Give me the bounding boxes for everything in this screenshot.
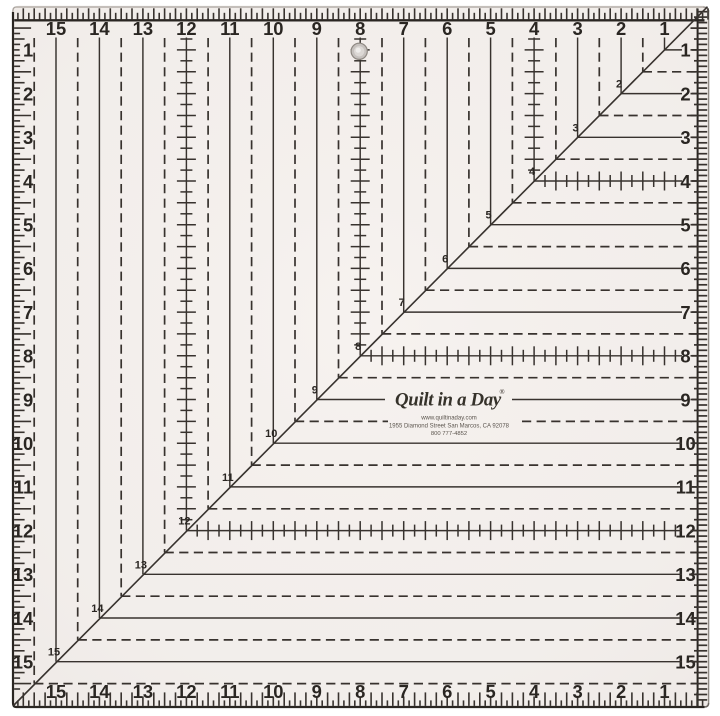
svg-text:13: 13 xyxy=(13,564,33,585)
svg-text:9: 9 xyxy=(312,18,322,39)
svg-text:9: 9 xyxy=(312,385,318,397)
svg-text:7: 7 xyxy=(399,297,405,309)
svg-text:13: 13 xyxy=(133,18,153,39)
svg-text:6: 6 xyxy=(442,18,452,39)
svg-text:4: 4 xyxy=(680,171,691,192)
svg-text:2: 2 xyxy=(23,83,33,104)
svg-text:1955 Diamond Street San Marcos: 1955 Diamond Street San Marcos, CA 92078 xyxy=(389,423,510,429)
svg-text:7: 7 xyxy=(23,302,33,323)
svg-text:12: 12 xyxy=(176,18,196,39)
svg-text:12: 12 xyxy=(13,520,33,541)
svg-text:11: 11 xyxy=(14,477,33,498)
svg-text:5: 5 xyxy=(486,210,492,222)
svg-text:15: 15 xyxy=(48,647,60,659)
svg-text:8: 8 xyxy=(355,341,361,353)
svg-text:15: 15 xyxy=(13,652,33,673)
svg-text:5: 5 xyxy=(23,215,33,236)
svg-text:11: 11 xyxy=(220,18,239,39)
svg-text:6: 6 xyxy=(23,258,33,279)
svg-text:2: 2 xyxy=(616,79,622,91)
svg-text:14: 14 xyxy=(89,18,110,39)
svg-text:7: 7 xyxy=(399,18,409,39)
svg-text:Quilt in a Day: Quilt in a Day xyxy=(395,390,502,411)
svg-text:4: 4 xyxy=(529,166,536,178)
svg-text:4: 4 xyxy=(23,171,34,192)
svg-text:2: 2 xyxy=(616,18,626,39)
svg-text:12: 12 xyxy=(178,516,190,528)
svg-text:14: 14 xyxy=(91,603,104,615)
svg-text:6: 6 xyxy=(442,253,448,265)
svg-text:10: 10 xyxy=(13,433,33,454)
svg-text:3: 3 xyxy=(573,122,579,134)
svg-text:10: 10 xyxy=(265,428,277,440)
svg-text:800 777-4852: 800 777-4852 xyxy=(431,431,467,437)
svg-text:13: 13 xyxy=(135,559,147,571)
svg-text:14: 14 xyxy=(13,608,34,629)
svg-text:11: 11 xyxy=(222,472,234,484)
svg-text:8: 8 xyxy=(355,18,365,39)
svg-text:10: 10 xyxy=(263,18,283,39)
svg-text:www.quiltinaday.com: www.quiltinaday.com xyxy=(420,416,477,422)
svg-text:15: 15 xyxy=(46,18,66,39)
svg-text:3: 3 xyxy=(23,127,33,148)
svg-text:1: 1 xyxy=(23,40,33,61)
svg-text:5: 5 xyxy=(485,18,495,39)
svg-text:1: 1 xyxy=(659,18,669,39)
svg-text:9: 9 xyxy=(23,389,33,410)
svg-text:8: 8 xyxy=(23,346,33,367)
svg-text:4: 4 xyxy=(529,18,540,39)
svg-text:3: 3 xyxy=(572,18,582,39)
svg-text:®: ® xyxy=(499,388,505,396)
